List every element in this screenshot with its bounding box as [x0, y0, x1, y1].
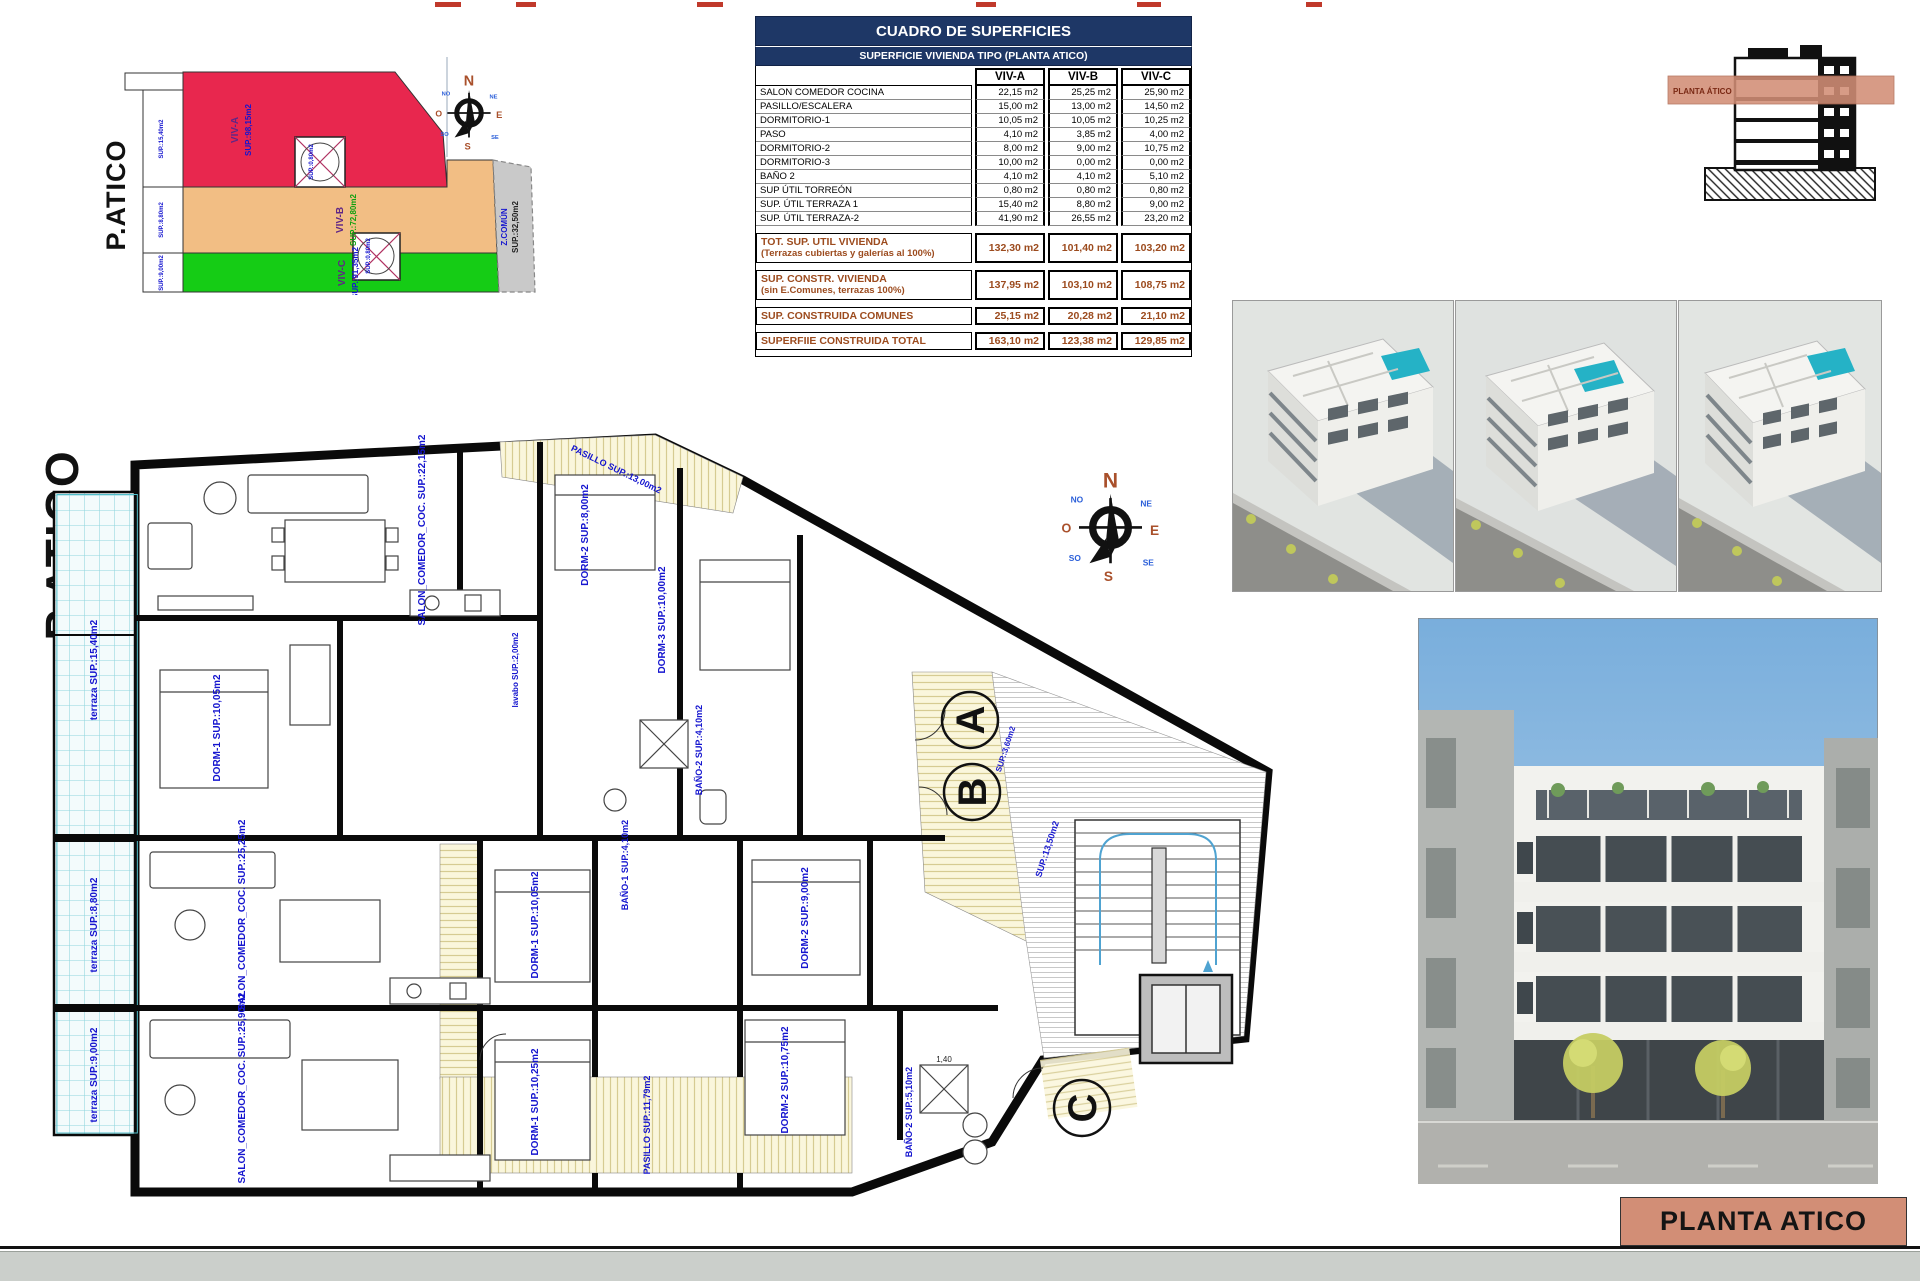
key-label-comun-area: SUP.:32,50m2	[511, 201, 520, 253]
aerial-render-3	[1678, 300, 1882, 592]
label-dorm1-b: DORM-1 SUP.:10,05m2	[530, 871, 541, 979]
totals-row-util: TOT. SUP. UTIL VIVIENDA(Terrazas cubiert…	[756, 233, 1191, 263]
col-header-empty	[756, 68, 972, 86]
table-row: BAÑO 2 4,10 m2 4,10 m2 5,10 m2	[756, 170, 1191, 184]
unit-circle-a: A	[949, 706, 993, 735]
key-plan-title: P.ATICO	[101, 139, 131, 250]
label-terraza-c: terraza SUP.:9,00m2	[89, 1027, 100, 1122]
sheet-title: PLANTA ATICO	[1660, 1206, 1867, 1237]
label-dorm1-c: DORM-1 SUP.:10,25m2	[530, 1048, 541, 1156]
totals-row-comunes: SUP. CONSTRUIDA COMUNES 25,15 m2 20,28 m…	[756, 307, 1191, 325]
key-label-viv-c-area: SUP.:91,35m2	[351, 247, 360, 295]
label-lavabo-a: lavabo SUP.:2,00m2	[511, 632, 520, 708]
floor-plan: P.ATICO	[40, 420, 1280, 1210]
areas-table-grid: VIV-A VIV-B VIV-C SALON COMEDOR COCINA 2…	[755, 66, 1192, 357]
key-edge-label-3: SUP.:9,00m2	[159, 255, 165, 291]
key-label-comun: Z.COMÚN	[500, 208, 509, 246]
torreon-box-2: SUP.:0,80m2	[353, 233, 400, 280]
label-dorm2-c: DORM-2 SUP.:10,75m2	[780, 1026, 791, 1134]
section-band-label: PLANTA ÁTICO	[1673, 87, 1732, 96]
label-bano-b: BAÑO-1 SUP.:4,10m2	[620, 820, 630, 910]
label-salon-b: SALON_COMEDOR_COC. SUP.:25,25m2	[237, 819, 248, 1010]
label-dorm1-a: DORM-1 SUP.:10,05m2	[212, 674, 223, 782]
unit-circle-c: C	[1061, 1094, 1105, 1123]
pasillo-left-strip	[440, 844, 480, 1079]
torreon-box-1: SUP.:0,80m2	[295, 137, 345, 187]
label-dorm3-a: DORM-3 SUP.:10,00m2	[657, 566, 668, 674]
table-row: PASILLO/ESCALERA 15,00 m2 13,00 m2 14,50…	[756, 100, 1191, 114]
section-diagram: PLANTA ÁTICO	[1660, 40, 1900, 215]
facade-render	[1418, 618, 1878, 1184]
facade-floor-rows	[1514, 836, 1824, 1040]
key-edge-label-2: SUP.:8,80m2	[159, 202, 165, 238]
label-salon-c: SALON_COMEDOR_COC. SUP.:25,90m2	[237, 992, 248, 1183]
key-label-viv-b-area: SUP.:72,80m2	[349, 194, 358, 246]
label-dorm2-a: DORM-2 SUP.:8,00m2	[580, 484, 591, 586]
label-terraza-b: terraza SUP.:8,80m2	[89, 877, 100, 972]
sheet-title-block: PLANTA ATICO	[1620, 1197, 1907, 1246]
areas-table: CUADRO DE SUPERFICIES SUPERFICIE VIVIEND…	[755, 16, 1192, 357]
areas-table-subtitle: SUPERFICIE VIVIENDA TIPO (PLANTA ATICO)	[755, 46, 1192, 66]
sheet-border-line	[0, 1246, 1920, 1249]
key-plan: P.ATICO SUP.:15,40m2 SUP.:8,80m2 SUP.:9,…	[95, 45, 565, 295]
torreon-label-1: SUP.:0,80m2	[309, 144, 315, 180]
key-label-viv-a: VIV-A	[230, 117, 241, 143]
unit-circle-b: B	[951, 778, 995, 807]
col-header-viv-a: VIV-A	[975, 68, 1045, 86]
key-edge-boxes	[125, 73, 183, 292]
col-header-viv-c: VIV-C	[1121, 68, 1191, 86]
table-row: SUP. ÚTIL TERRAZA 1 15,40 m2 8,80 m2 9,0…	[756, 198, 1191, 212]
label-bano-a: BAÑO-2 SUP.:4,10m2	[694, 705, 704, 795]
elevator	[1140, 975, 1232, 1063]
label-salon-a: SALON_COMEDOR_COC. SUP.:22,15m2	[417, 434, 428, 625]
label-terraza-a: terraza SUP.:15,40m2	[89, 619, 100, 720]
col-header-viv-b: VIV-B	[1048, 68, 1118, 86]
totals-row-total: SUPERFIIE CONSTRUIDA TOTAL 163,10 m2 123…	[756, 332, 1191, 350]
label-shower-dim: 1,40	[936, 1055, 952, 1064]
table-row: DORMITORIO-2 8,00 m2 9,00 m2 10,75 m2	[756, 142, 1191, 156]
aerial-render-2	[1455, 300, 1677, 592]
label-pasillo-bottom: PASILLO SUP.:11,79m2	[642, 1076, 652, 1175]
torreon-label-2: SUP.:0,80m2	[366, 238, 372, 274]
label-dorm2-b: DORM-2 SUP.:9,00m2	[800, 867, 811, 969]
label-bano-c: BAÑO-2 SUP.:5,10m2	[904, 1067, 914, 1157]
key-label-viv-b: VIV-B	[335, 207, 346, 233]
table-row: SALON COMEDOR COCINA 22,15 m2 25,25 m2 2…	[756, 86, 1191, 100]
table-row: SUP ÚTIL TORREÓN 0,80 m2 0,80 m2 0,80 m2	[756, 184, 1191, 198]
totals-row-constr: SUP. CONSTR. VIVIENDA(sin E.Comunes, ter…	[756, 270, 1191, 300]
table-row: DORMITORIO-1 10,05 m2 10,05 m2 10,25 m2	[756, 114, 1191, 128]
key-edge-label-1: SUP.:15,40m2	[159, 119, 165, 159]
key-label-viv-c: VIV-C	[337, 260, 348, 286]
sheet-footer-strip	[0, 1251, 1920, 1281]
table-row: PASO 4,10 m2 3,85 m2 4,00 m2	[756, 128, 1191, 142]
areas-table-title: CUADRO DE SUPERFICIES	[755, 16, 1192, 46]
key-label-viv-a-area: SUP.:98,15m2	[244, 104, 253, 156]
table-row: DORMITORIO-3 10,00 m2 0,00 m2 0,00 m2	[756, 156, 1191, 170]
table-row: SUP. ÚTIL TERRAZA-2 41,90 m2 26,55 m2 23…	[756, 212, 1191, 226]
